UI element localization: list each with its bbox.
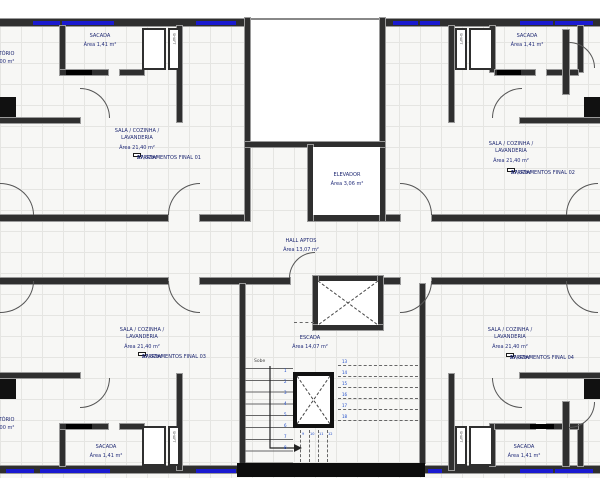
apartment-tag: APARTAMENTOS FINAL 01 57,32m² — [133, 153, 141, 157]
window-marker — [520, 21, 553, 25]
edge-element — [584, 97, 600, 117]
window-marker — [62, 21, 114, 25]
dashed-tread — [338, 387, 418, 388]
window-marker — [196, 21, 236, 25]
step-number: 10 — [310, 432, 314, 436]
window-marker — [196, 469, 236, 473]
dashed-tread — [338, 420, 418, 421]
door-swing-arc — [492, 378, 522, 408]
wall — [378, 276, 383, 330]
wall — [380, 278, 400, 284]
shaft-box: SHAFT — [455, 426, 467, 466]
edge-element — [584, 379, 600, 399]
shaft-label: SHAFT — [172, 33, 176, 44]
stair-exterior-wall — [237, 463, 425, 477]
stairs-label: ESCADA — [300, 335, 320, 342]
edge-element — [0, 97, 16, 117]
balcony-label: SACADA — [517, 33, 538, 40]
wall — [449, 26, 454, 122]
window-marker — [555, 469, 593, 473]
balcony-label: SACADA — [90, 33, 111, 40]
step-number: 7 — [284, 435, 287, 439]
floor-plan-canvas: ELEVADOR Área 3,06 m² SACADA Área 1,41 m… — [0, 0, 600, 500]
apartment-tag: APARTAMENTOS FINAL 03 57,32m² — [138, 352, 146, 356]
balcony-door-sill — [66, 424, 92, 429]
step-number: 1 — [284, 369, 287, 373]
window-marker — [428, 469, 442, 473]
door-swing-arc — [569, 402, 595, 428]
dashed-tread — [338, 409, 418, 410]
wall — [0, 215, 168, 221]
stair-direction-arrow — [260, 360, 320, 455]
balcony-door-sill — [497, 70, 521, 75]
room-area: Área 21,40 m² — [124, 344, 160, 350]
apartment-tag-area: 57,32m² — [511, 170, 532, 176]
edge-room-area: Área 7,00 m² — [0, 425, 14, 431]
stairs-up-label: Sobe — [254, 359, 265, 364]
window-marker — [520, 469, 553, 473]
door-swing-arc — [289, 252, 315, 278]
step-number: 9 — [302, 432, 304, 436]
room-area: Área 21,40 m² — [492, 344, 528, 350]
step-number: 11 — [319, 432, 323, 436]
step-number: 5 — [284, 413, 287, 417]
wall — [120, 424, 144, 429]
door-swing-arc — [400, 183, 432, 215]
balcony-label: SACADA — [96, 444, 117, 451]
wall — [60, 424, 65, 466]
apartment-tag-area: 57,32m² — [142, 354, 163, 360]
wall — [0, 118, 80, 123]
balcony-label: SACADA — [514, 444, 535, 451]
door-swing-arc — [0, 281, 34, 313]
wall — [200, 278, 290, 284]
apartment-tag: APARTAMENTOS FINAL 02 57,32m² — [507, 168, 515, 172]
dashed-tread — [338, 365, 418, 366]
wall — [449, 374, 454, 470]
step-number: 15 — [342, 382, 347, 386]
edge-element — [0, 379, 16, 399]
room-label: SALA / COZINHA / — [488, 327, 532, 334]
step-number: 2 — [284, 380, 287, 384]
step-number: 14 — [342, 371, 347, 375]
window-marker — [420, 21, 440, 25]
wall — [420, 284, 425, 463]
window-marker — [6, 469, 34, 473]
closet-box — [142, 28, 166, 70]
room-label: SALA / COZINHA / — [120, 327, 164, 334]
wall — [578, 424, 583, 466]
door-swing-arc — [566, 281, 598, 313]
wall — [60, 26, 65, 72]
closet-box — [142, 426, 166, 466]
wall — [313, 325, 383, 330]
window-marker — [33, 21, 60, 25]
closet-box — [469, 426, 493, 466]
void-area — [250, 20, 380, 142]
step-number: 17 — [342, 404, 347, 408]
wall — [200, 215, 250, 221]
room-label: SALA / COZINHA / — [115, 128, 159, 135]
wall — [380, 18, 385, 221]
wall — [495, 424, 535, 429]
step-number: 12 — [328, 432, 332, 436]
step-number: 13 — [342, 360, 347, 364]
edge-room-area: Área 7,00 m² — [0, 59, 14, 65]
room-area: Área 21,40 m² — [493, 158, 529, 164]
balcony-area: Área 1,41 m² — [511, 42, 544, 48]
door-swing-arc — [400, 281, 432, 313]
balcony-area: Área 1,41 m² — [90, 453, 123, 459]
shaft-box: SHAFT — [455, 28, 467, 70]
hall-label: HALL APTOS — [286, 238, 317, 245]
wall — [120, 70, 144, 75]
door-swing-arc — [569, 42, 595, 68]
shaft-box: SHAFT — [168, 28, 180, 70]
wall — [520, 118, 600, 123]
shaft-label: SHAFT — [172, 431, 176, 442]
balcony-area: Área 1,41 m² — [84, 42, 117, 48]
step-number: 16 — [342, 393, 347, 397]
shaft-label: SHAFT — [459, 431, 463, 442]
wall — [308, 215, 400, 221]
door-swing-arc — [0, 183, 34, 215]
apartment-tag: APARTAMENTOS FINAL 04 57,32m² — [506, 353, 514, 357]
room-label: LAVANDERIA — [495, 148, 527, 155]
wall — [432, 215, 600, 221]
balcony-door-sill — [530, 424, 554, 429]
window-marker — [393, 21, 418, 25]
step-number: 6 — [284, 424, 287, 428]
door-swing-arc — [80, 88, 110, 118]
apartment-tag-area: 57,32m² — [137, 155, 158, 161]
door-swing-arc — [168, 281, 200, 313]
top-margin — [0, 0, 600, 18]
room-label: LAVANDERIA — [121, 135, 153, 142]
room-label: SALA / COZINHA / — [489, 141, 533, 148]
bottom-margin — [0, 478, 600, 500]
room-area: Área 21,40 m² — [119, 145, 155, 151]
room-label: LAVANDERIA — [494, 334, 526, 341]
apartment-tag-area: 57,32m² — [510, 355, 531, 361]
step-number: 3 — [284, 391, 287, 395]
step-number: 8 — [284, 446, 287, 450]
balcony-area: Área 1,41 m² — [508, 453, 541, 459]
shaft-label: SHAFT — [459, 33, 463, 44]
dashed-tread — [338, 398, 418, 399]
shaft-x-mark — [318, 281, 378, 325]
wall — [520, 373, 600, 378]
door-swing-arc — [80, 378, 110, 408]
edge-room-label: DORMITÓRIO — [0, 51, 14, 58]
stairs-area: Área 14,07 m² — [292, 344, 328, 350]
door-swing-arc — [168, 183, 200, 215]
shaft-box: SHAFT — [168, 426, 180, 466]
void-top-line — [247, 18, 383, 20]
window-marker — [555, 21, 593, 25]
door-swing-arc — [566, 183, 598, 215]
elevator-label: ELEVADOR — [334, 172, 361, 179]
room-label: LAVANDERIA — [126, 334, 158, 341]
closet-box — [469, 28, 493, 70]
elevator-area: Área 3,06 m² — [331, 181, 364, 187]
edge-room-label: DORMITÓRIO — [0, 417, 14, 424]
wall — [0, 373, 80, 378]
step-number: 4 — [284, 402, 287, 406]
door-swing-arc — [492, 88, 522, 118]
dashed-tread — [338, 376, 418, 377]
wall — [245, 18, 250, 221]
window-marker — [40, 469, 110, 473]
landing-dashed-line — [294, 322, 314, 323]
balcony-door-sill — [66, 70, 92, 75]
hall-area: Área 13,07 m² — [283, 247, 319, 253]
step-number: 18 — [342, 415, 347, 419]
